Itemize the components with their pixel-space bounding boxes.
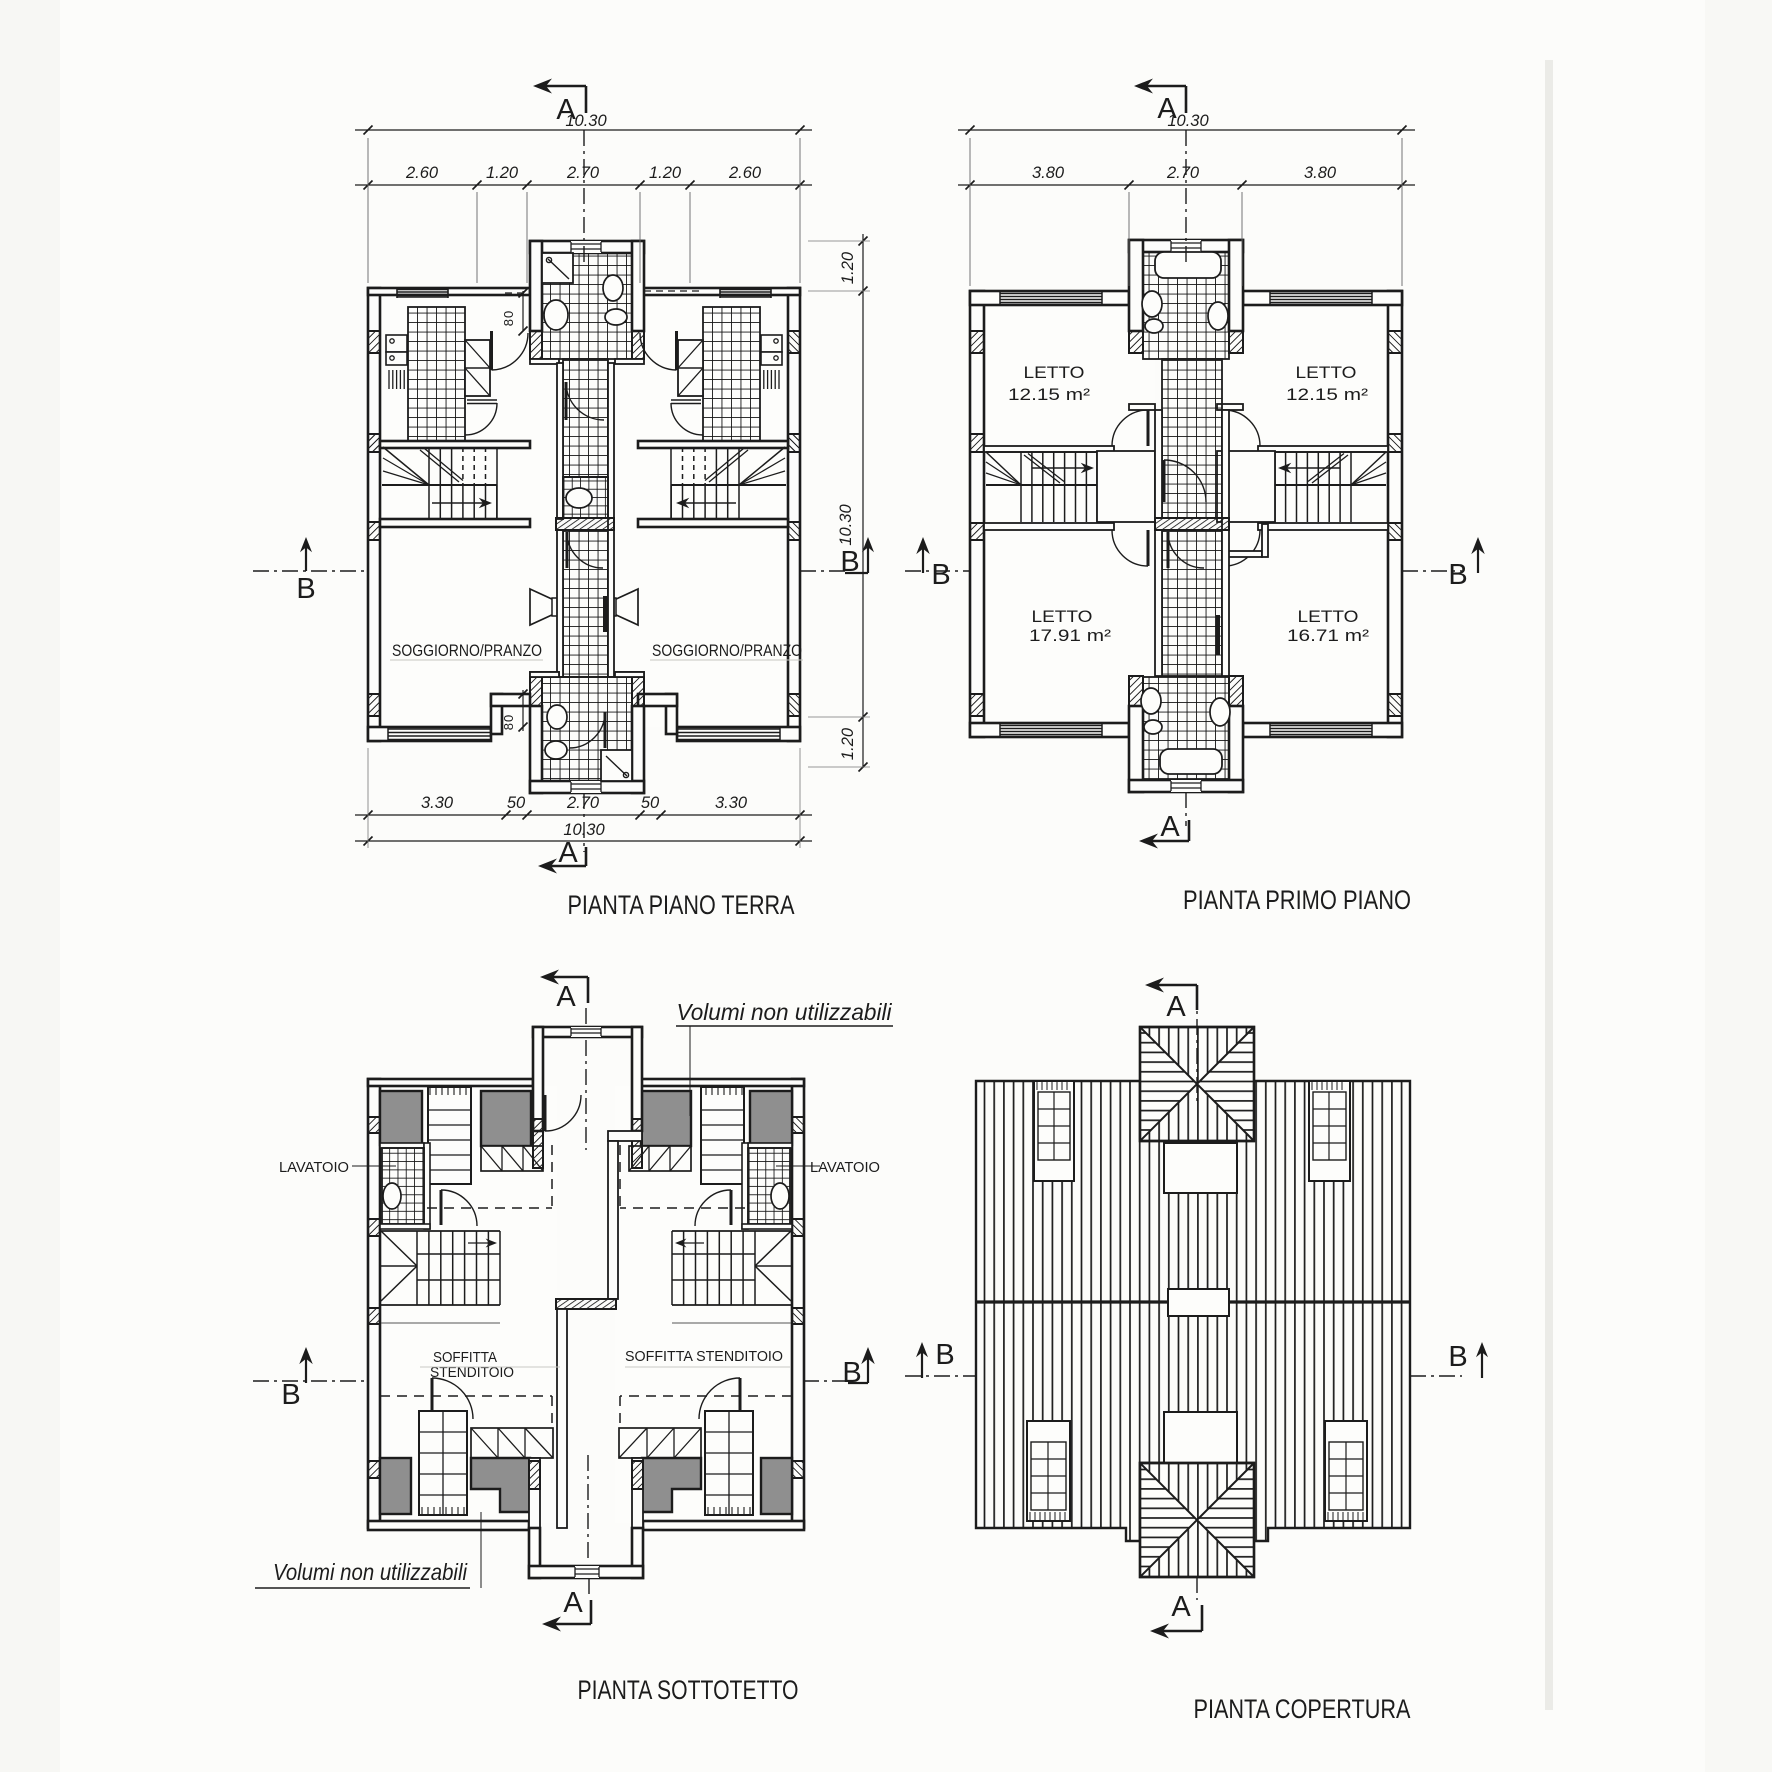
svg-text:B: B bbox=[931, 559, 950, 591]
svg-text:Volumi non utilizzabili: Volumi non utilizzabili bbox=[273, 1559, 468, 1585]
svg-text:1.20: 1.20 bbox=[839, 251, 857, 284]
svg-text:B: B bbox=[935, 1339, 954, 1371]
svg-text:SOGGIORNO/PRANZO: SOGGIORNO/PRANZO bbox=[652, 641, 802, 660]
svg-text:PIANTA PRIMO PIANO: PIANTA PRIMO PIANO bbox=[1183, 885, 1411, 915]
svg-text:10.30: 10.30 bbox=[565, 112, 607, 130]
svg-text:12.15 m²: 12.15 m² bbox=[1286, 386, 1369, 404]
svg-text:B: B bbox=[1448, 559, 1467, 591]
svg-text:B: B bbox=[296, 573, 315, 605]
svg-text:12.15 m²: 12.15 m² bbox=[1008, 386, 1091, 404]
svg-text:B: B bbox=[840, 546, 859, 578]
svg-text:3.30: 3.30 bbox=[421, 794, 454, 812]
svg-text:2.70: 2.70 bbox=[1166, 164, 1200, 182]
svg-text:80: 80 bbox=[501, 310, 516, 326]
svg-text:10.30: 10.30 bbox=[837, 504, 855, 546]
svg-text:2.60: 2.60 bbox=[405, 164, 439, 182]
svg-text:10.30: 10.30 bbox=[563, 821, 605, 839]
svg-text:2.70: 2.70 bbox=[566, 164, 600, 182]
svg-text:1.20: 1.20 bbox=[486, 164, 519, 182]
svg-text:3.80: 3.80 bbox=[1032, 164, 1065, 182]
svg-text:2.60: 2.60 bbox=[728, 164, 762, 182]
svg-text:50: 50 bbox=[641, 794, 660, 812]
svg-text:LAVATOIO: LAVATOIO bbox=[279, 1159, 349, 1176]
svg-text:A: A bbox=[1160, 811, 1180, 843]
svg-text:PIANTA SOTTOTETTO: PIANTA SOTTOTETTO bbox=[578, 1675, 799, 1705]
svg-text:LETTO: LETTO bbox=[1024, 364, 1085, 382]
svg-text:B: B bbox=[842, 1357, 861, 1389]
svg-text:SOFFITTA STENDITOIO: SOFFITTA STENDITOIO bbox=[625, 1348, 783, 1365]
svg-text:B: B bbox=[281, 1379, 300, 1411]
svg-text:1.20: 1.20 bbox=[839, 727, 857, 760]
svg-text:3.30: 3.30 bbox=[715, 794, 748, 812]
svg-text:B: B bbox=[1448, 1341, 1467, 1373]
svg-text:10.30: 10.30 bbox=[1167, 112, 1209, 130]
svg-text:LAVATOIO: LAVATOIO bbox=[810, 1159, 880, 1176]
svg-text:PIANTA PIANO TERRA: PIANTA PIANO TERRA bbox=[568, 890, 795, 920]
svg-text:50: 50 bbox=[507, 794, 526, 812]
svg-text:PIANTA COPERTURA: PIANTA COPERTURA bbox=[1194, 1694, 1411, 1724]
svg-text:3.80: 3.80 bbox=[1304, 164, 1337, 182]
svg-text:LETTO: LETTO bbox=[1032, 608, 1093, 626]
svg-text:2.70: 2.70 bbox=[566, 794, 600, 812]
svg-text:A: A bbox=[1171, 1591, 1191, 1623]
svg-text:80: 80 bbox=[501, 714, 516, 730]
svg-text:LETTO: LETTO bbox=[1298, 608, 1359, 626]
svg-text:Volumi non utilizzabili: Volumi non utilizzabili bbox=[677, 999, 893, 1025]
svg-text:A: A bbox=[556, 981, 576, 1013]
svg-text:1.20: 1.20 bbox=[649, 164, 682, 182]
svg-text:A: A bbox=[563, 1587, 583, 1619]
svg-text:LETTO: LETTO bbox=[1296, 364, 1357, 382]
svg-text:16.71 m²: 16.71 m² bbox=[1287, 627, 1370, 645]
svg-text:17.91 m²: 17.91 m² bbox=[1029, 627, 1112, 645]
svg-text:A: A bbox=[558, 837, 578, 869]
svg-text:A: A bbox=[1166, 991, 1186, 1023]
svg-text:SOGGIORNO/PRANZO: SOGGIORNO/PRANZO bbox=[392, 641, 542, 660]
